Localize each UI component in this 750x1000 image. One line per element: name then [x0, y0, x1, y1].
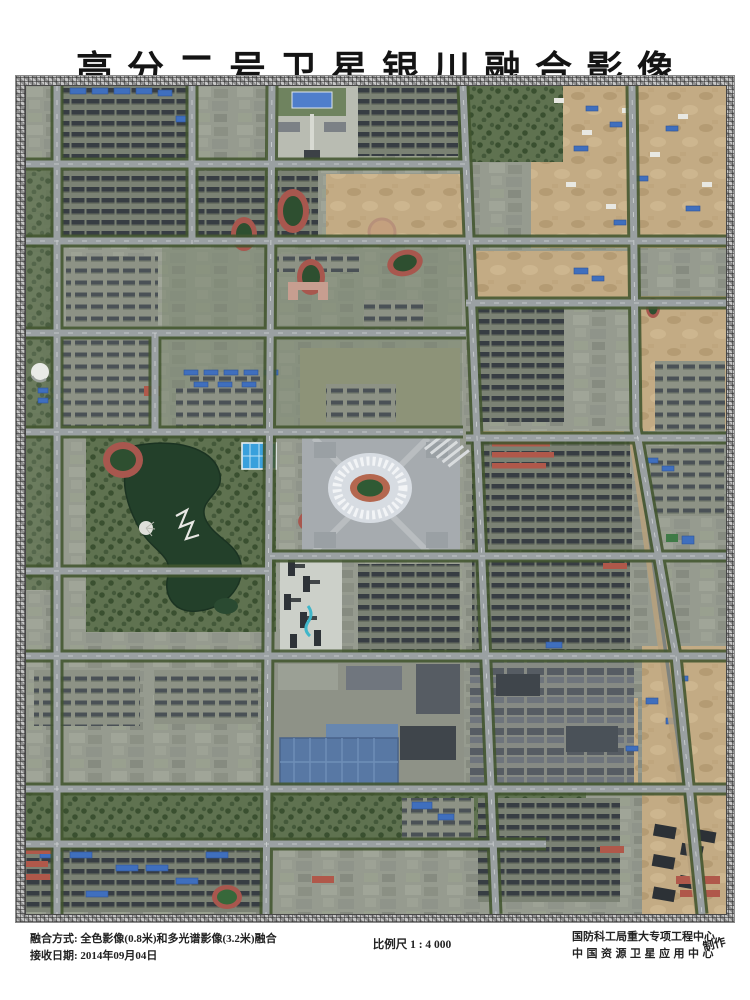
- reception-date-line: 接收日期: 2014年09月04日: [30, 948, 277, 965]
- industrial-zone: [272, 658, 634, 786]
- satellite-image: [25, 85, 727, 915]
- stadium: [302, 427, 470, 561]
- tower-construction: [280, 554, 342, 654]
- map-frame: [15, 75, 735, 923]
- fusion-method-line: 融合方式: 全色影像(0.8米)和多光谱影像(3.2米)融合: [30, 931, 277, 948]
- footer-left: 融合方式: 全色影像(0.8米)和多光谱影像(3.2米)融合 接收日期: 201…: [30, 931, 277, 965]
- footer: 融合方式: 全色影像(0.8米)和多光谱影像(3.2米)融合 接收日期: 201…: [0, 925, 750, 995]
- axial-campus: [266, 86, 358, 160]
- footer-right: 国防科工局重大专项工程中心 中国资源卫星应用中心 制作: [572, 929, 717, 963]
- producer-line1: 国防科工局重大专项工程中心: [572, 929, 717, 946]
- poster-page: 高分二号卫星银川融合影像: [0, 0, 750, 1000]
- producer-line2: 中国资源卫星应用中心: [572, 946, 717, 963]
- scale-text: 比例尺 1 : 4 000: [352, 936, 472, 952]
